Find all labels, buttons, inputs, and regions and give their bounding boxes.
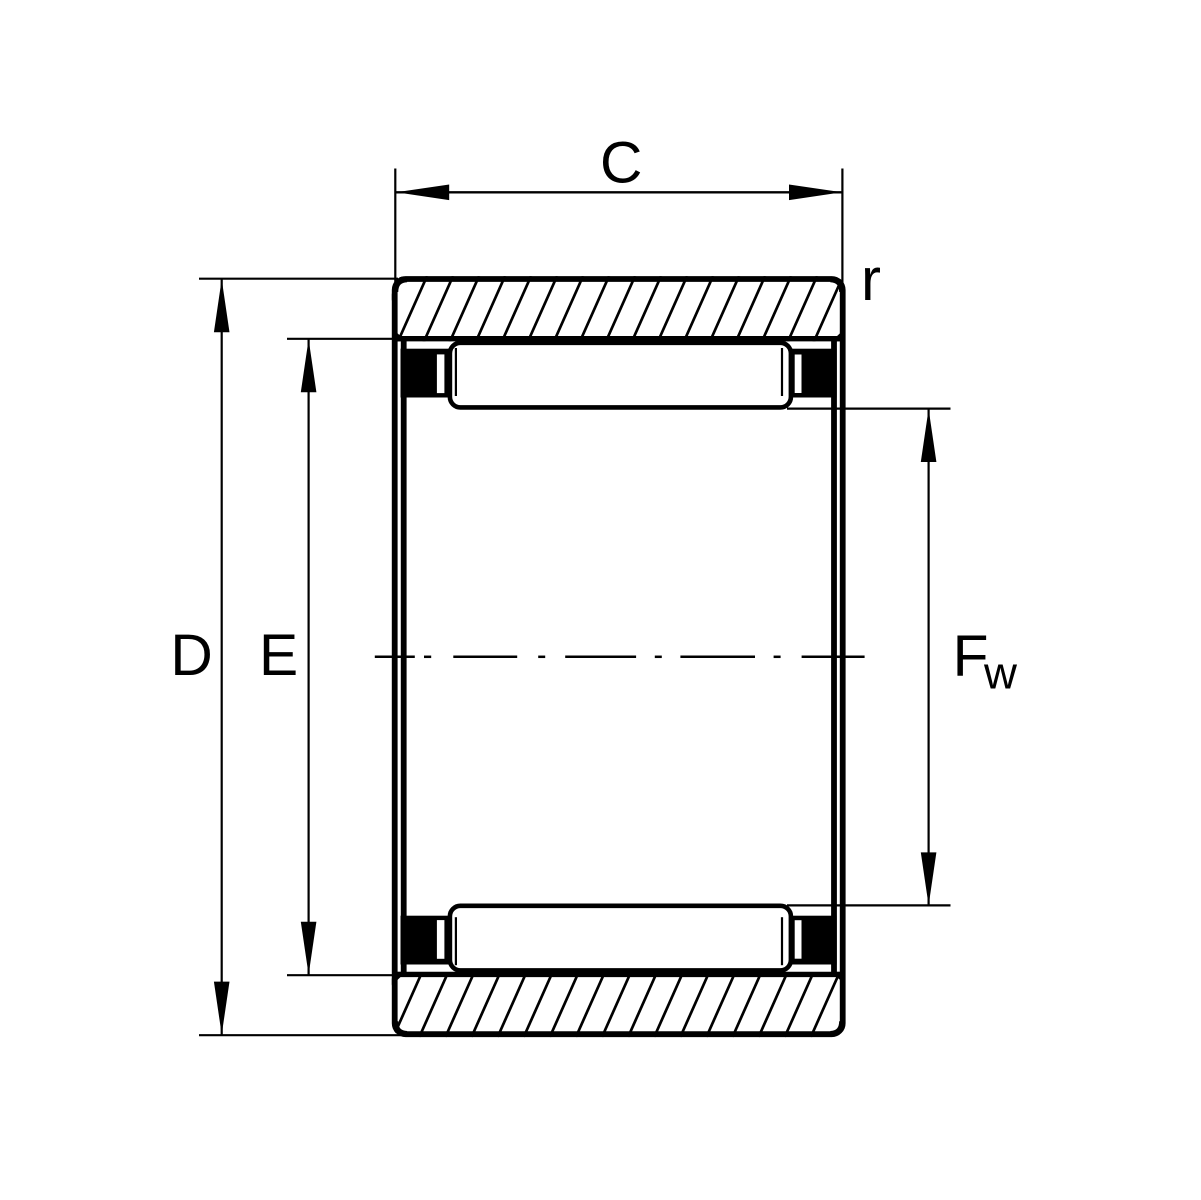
svg-text:D: D: [170, 623, 212, 688]
svg-text:w: w: [983, 647, 1018, 698]
svg-text:C: C: [600, 131, 642, 196]
svg-text:E: E: [259, 623, 298, 688]
svg-text:r: r: [861, 246, 881, 313]
